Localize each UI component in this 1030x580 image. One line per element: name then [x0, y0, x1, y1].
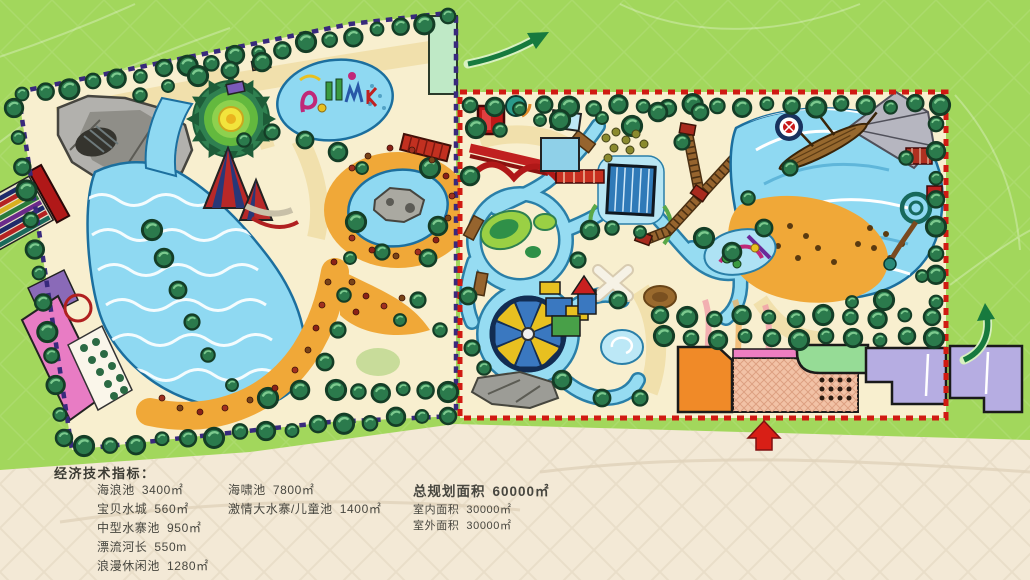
shrub-dot — [177, 405, 183, 411]
shrub-dot — [626, 146, 634, 154]
tree-icon — [5, 99, 23, 117]
shrub-dot — [159, 395, 165, 401]
tree-icon — [610, 96, 628, 114]
tree-icon — [56, 430, 72, 446]
tree-icon — [204, 428, 223, 447]
tree-icon — [233, 424, 247, 438]
tree-icon — [637, 100, 650, 113]
tree-icon — [874, 334, 887, 347]
tree-icon — [23, 213, 37, 227]
tree-icon — [14, 159, 30, 175]
tree-icon — [291, 381, 309, 399]
life-ring-feature — [775, 113, 803, 141]
tree-icon — [162, 80, 174, 92]
lawn-patch — [356, 348, 400, 376]
tree-icon — [930, 172, 943, 185]
tree-icon — [756, 220, 772, 236]
tree-icon — [53, 408, 66, 421]
tree-icon — [733, 306, 751, 324]
tree-icon — [844, 329, 862, 347]
tree-icon — [372, 384, 390, 402]
tree-icon — [929, 247, 943, 261]
tree-icon — [694, 228, 713, 247]
tree-icon — [634, 226, 646, 238]
tree-icon — [846, 296, 858, 308]
tree-icon — [463, 98, 477, 112]
water-park-master-plan — [0, 0, 1030, 580]
tree-icon — [344, 252, 356, 264]
tree-icon — [420, 250, 436, 266]
service-building-orange — [678, 347, 732, 412]
shrub-dot — [622, 136, 630, 144]
tree-icon — [675, 135, 690, 150]
shrub-dot — [415, 249, 421, 255]
tree-icon — [605, 221, 618, 234]
tree-icon — [441, 9, 455, 23]
tree-icon — [286, 424, 299, 437]
landing-pool — [541, 138, 579, 171]
tree-icon — [156, 432, 169, 445]
shrub-dot — [387, 145, 393, 151]
tree-icon — [180, 430, 196, 446]
tree-icon — [814, 305, 833, 324]
shrub-dot — [272, 385, 278, 391]
shrub-dot — [449, 193, 455, 199]
tree-icon — [155, 249, 173, 267]
shrub-dot — [445, 215, 451, 221]
tree-icon — [345, 29, 363, 47]
shrub-dot — [632, 130, 640, 138]
tree-icon — [581, 221, 599, 239]
shrub-dot — [602, 134, 610, 142]
tree-icon — [142, 220, 161, 239]
tree-icon — [741, 191, 754, 204]
tree-icon — [926, 217, 945, 236]
tree-icon — [857, 97, 875, 115]
tree-icon — [654, 326, 673, 345]
tree-icon — [12, 131, 25, 144]
tree-icon — [723, 243, 741, 261]
tree-icon — [397, 382, 410, 395]
tree-icon — [678, 307, 697, 326]
shrub-dot — [393, 253, 399, 259]
tree-icon — [927, 266, 945, 284]
tree-icon — [924, 328, 943, 347]
tree-icon — [927, 142, 945, 160]
tree-icon — [274, 42, 290, 58]
tree-icon — [356, 162, 368, 174]
tree-icon — [710, 99, 724, 113]
shrub-dot — [433, 237, 439, 243]
tree-icon — [226, 379, 238, 391]
tree-icon — [329, 143, 347, 161]
tree-icon — [201, 348, 214, 361]
tree-icon — [884, 101, 897, 114]
tree-icon — [550, 110, 569, 129]
tree-icon — [534, 114, 546, 126]
tree-icon — [438, 382, 457, 401]
tree-icon — [493, 123, 506, 136]
tree-icon — [733, 99, 751, 117]
tree-icon — [375, 245, 390, 260]
shrub-dot — [197, 409, 203, 415]
tree-icon — [874, 290, 893, 309]
tree-icon — [415, 15, 434, 34]
shrub-dot — [429, 157, 435, 163]
dirt-circle — [644, 286, 676, 308]
tree-icon — [898, 309, 911, 322]
tree-icon — [133, 88, 146, 101]
shrub-dot — [365, 153, 371, 159]
tree-icon — [930, 296, 943, 309]
tree-icon — [784, 98, 800, 114]
tree-icon — [296, 32, 315, 51]
tree-icon — [371, 23, 384, 36]
tree-icon — [440, 408, 456, 424]
tree-icon — [134, 70, 147, 83]
tree-icon — [156, 60, 172, 76]
tree-icon — [899, 328, 915, 344]
shrub-dot — [325, 279, 331, 285]
tree-icon — [103, 438, 117, 452]
tree-icon — [649, 103, 667, 121]
shrub-dot — [369, 247, 375, 253]
tree-icon — [351, 384, 365, 398]
tree-icon — [513, 102, 526, 115]
tree-icon — [843, 310, 857, 324]
tree-icon — [536, 97, 552, 113]
tree-icon — [222, 62, 238, 78]
tree-icon — [310, 416, 326, 432]
tree-icon — [237, 133, 250, 146]
shrub-dot — [612, 128, 620, 136]
tree-icon — [571, 253, 586, 268]
shrub-dot — [604, 154, 612, 162]
tree-icon — [317, 354, 333, 370]
tree-icon — [916, 270, 928, 282]
shrub-dot — [409, 147, 415, 153]
tree-icon — [86, 74, 100, 88]
shrub-dot — [349, 165, 355, 171]
tree-icon — [108, 70, 126, 88]
tree-icon — [35, 295, 51, 311]
tree-icon — [466, 118, 485, 137]
shrub-dot — [349, 235, 355, 241]
shrub-dot — [292, 367, 298, 373]
tree-icon — [185, 315, 200, 330]
tree-icon — [553, 371, 571, 389]
tree-icon — [322, 32, 336, 46]
tree-icon — [461, 167, 479, 185]
tree-icon — [930, 95, 949, 114]
tree-icon — [460, 288, 476, 304]
shrub-dot — [247, 397, 253, 403]
tree-icon — [684, 331, 698, 345]
tree-icon — [907, 95, 923, 111]
tree-icon — [807, 98, 826, 117]
tree-icon — [899, 151, 912, 164]
tree-icon — [393, 19, 409, 35]
tree-icon — [257, 422, 275, 440]
shrub-dot — [640, 140, 648, 148]
tree-icon — [204, 56, 218, 70]
tree-icon — [331, 323, 346, 338]
tree-icon — [465, 341, 480, 356]
tree-icon — [44, 348, 58, 362]
tree-icon — [297, 132, 313, 148]
tree-icon — [433, 323, 446, 336]
swirl-pond — [601, 330, 643, 364]
tree-icon — [709, 331, 727, 349]
tree-icon — [38, 322, 57, 341]
tree-icon — [477, 361, 490, 374]
tree-icon — [38, 84, 54, 100]
tree-icon — [418, 382, 434, 398]
tree-icon — [47, 376, 65, 394]
tree-icon — [594, 390, 610, 406]
shrub-dot — [610, 144, 618, 152]
tree-icon — [692, 104, 708, 120]
tree-icon — [764, 330, 780, 346]
tree-icon — [265, 125, 280, 140]
tree-icon — [596, 112, 608, 124]
shrub-dot — [381, 303, 387, 309]
tree-icon — [788, 311, 804, 327]
service-building-green — [797, 345, 868, 373]
shrub-dot — [222, 405, 228, 411]
tree-icon — [411, 293, 426, 308]
shrub-dot — [399, 295, 405, 301]
shrub-dot — [363, 293, 369, 299]
tree-icon — [819, 329, 833, 343]
tree-icon — [610, 292, 626, 308]
tree-icon — [170, 282, 186, 298]
shrub-dot — [313, 325, 319, 331]
tree-icon — [707, 312, 721, 326]
tree-icon — [739, 330, 752, 343]
tree-icon — [834, 96, 848, 110]
tree-icon — [17, 181, 36, 200]
tree-icon — [26, 241, 44, 259]
tree-icon — [929, 117, 943, 131]
shrub-dot — [353, 309, 359, 315]
tree-icon — [33, 267, 46, 280]
tree-icon — [924, 309, 940, 325]
tree-icon — [416, 410, 429, 423]
tree-icon — [127, 436, 145, 454]
shrub-dot — [331, 259, 337, 265]
tree-icon — [633, 391, 648, 406]
shrub-dot — [305, 347, 311, 353]
tree-icon — [363, 416, 377, 430]
shrub-dot — [349, 279, 355, 285]
tree-icon — [928, 191, 944, 207]
tree-icon — [337, 288, 350, 301]
shrub-dot — [443, 173, 449, 179]
tree-icon — [346, 212, 365, 231]
tree-icon — [762, 311, 775, 324]
tree-icon — [74, 436, 93, 455]
tree-icon — [789, 330, 808, 349]
tree-icon — [387, 408, 405, 426]
tree-icon — [60, 80, 79, 99]
tree-icon — [394, 314, 406, 326]
tree-icon — [253, 53, 271, 71]
tree-icon — [869, 310, 887, 328]
tree-icon — [334, 414, 353, 433]
tree-icon — [486, 98, 504, 116]
tree-icon — [429, 217, 447, 235]
tree-icon — [652, 307, 668, 323]
shrub-dot — [319, 302, 325, 308]
tree-icon — [760, 97, 773, 110]
rock-island-pond — [324, 152, 472, 268]
tree-icon — [783, 161, 798, 176]
tree-icon — [188, 66, 207, 85]
tree-icon — [326, 380, 345, 399]
